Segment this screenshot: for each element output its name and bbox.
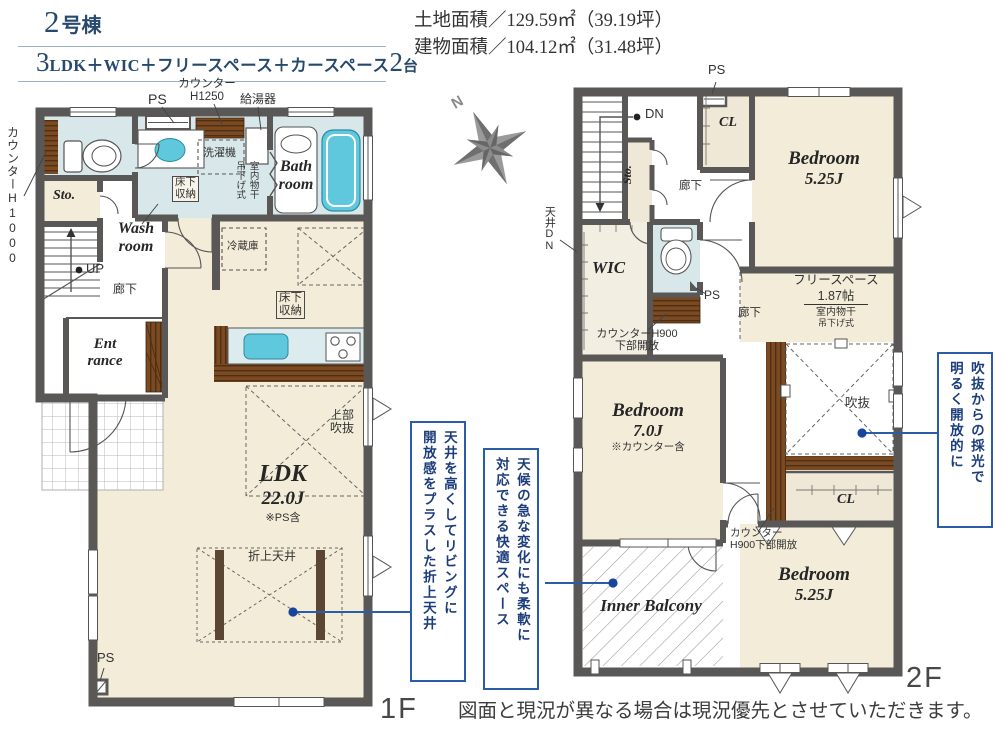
label-dn: DN bbox=[645, 107, 664, 122]
compass-icon bbox=[437, 95, 543, 201]
label-hallway-1f: 廊下 bbox=[113, 283, 137, 296]
label-cl-bottom: CL bbox=[837, 492, 855, 508]
label-inner-balcony: Inner Balcony bbox=[580, 596, 722, 615]
label-counter-h900-1: カウンターH900 下部開放 bbox=[588, 328, 686, 353]
label-bedroom1: Bedroom 5.25J bbox=[768, 148, 880, 188]
label-underfloor-storage-2: 床下 収納 bbox=[276, 291, 305, 319]
page-title: 2 号棟 bbox=[44, 4, 102, 40]
label-upper-void: 上部 吹抜 bbox=[322, 409, 362, 436]
kitchen-sink-icon bbox=[244, 334, 288, 359]
label-ldk: LDK 22.0J ※PS含 bbox=[240, 461, 326, 524]
label-void: 吹抜 bbox=[845, 396, 870, 410]
counter-h900-1-icon bbox=[650, 297, 700, 323]
plan-text: LDK＋WIC＋フリースペース＋カースペース bbox=[50, 52, 390, 76]
void-annotation-dot bbox=[857, 428, 866, 437]
callout-inner-balcony: 天候の急な変化にも柔軟に 対応できる快適スペース bbox=[483, 448, 539, 690]
label-ps-1f-bottom: PS bbox=[97, 651, 114, 666]
plan-cars-count: 2 bbox=[389, 47, 403, 78]
plan-summary: 3 LDK＋WIC＋フリースペース＋カースペース 2 台 bbox=[36, 47, 418, 78]
label-underfloor-storage-1: 床下 収納 bbox=[172, 176, 199, 202]
label-washer: 洗濯機 bbox=[203, 147, 236, 159]
label-water-heater: 給湯器 bbox=[240, 93, 276, 106]
label-ps-2f-top: PS bbox=[708, 63, 725, 78]
label-storage-1f: Sto. bbox=[53, 188, 75, 204]
up-dot bbox=[76, 267, 83, 274]
label-storage-2f: Sto. bbox=[621, 165, 634, 184]
toilet-icon-2f bbox=[661, 228, 692, 274]
balcony-annotation-dot bbox=[608, 578, 617, 587]
label-ceiling-dn: 天井DN bbox=[543, 206, 555, 268]
kitchen-icon bbox=[214, 326, 368, 382]
label-fridge: 冷蔵庫 bbox=[227, 241, 259, 253]
label-washroom: Wash room bbox=[106, 220, 166, 256]
land-area: 土地面積／129.59㎡（39.19坪） bbox=[414, 11, 673, 32]
floorplan-page: 2 号棟 3 LDK＋WIC＋フリースペース＋カースペース 2 台 土地面積／1… bbox=[0, 0, 1002, 737]
label-indoor-drying-1f: 室内物干 吊下げ式 bbox=[233, 161, 260, 217]
callout-coffered-ceiling: 天井を高くしてリビングに 開放感をプラスした折上天井 bbox=[410, 421, 466, 682]
building-area: 建物面積／104.12㎡（31.48坪） bbox=[414, 38, 673, 59]
label-counter-h1000: カウンターH1000 bbox=[5, 126, 18, 298]
plan-rooms-count: 3 bbox=[36, 47, 50, 78]
label-free-space: フリースペース 1.87帖 室内物干 吊下げ式 bbox=[776, 273, 896, 328]
label-bedroom3: Bedroom 5.25J bbox=[758, 564, 870, 604]
label-bathroom: Bath room bbox=[270, 158, 322, 194]
stove-icon bbox=[326, 333, 360, 361]
toilet-icon bbox=[64, 140, 121, 172]
label-ps-2f-mid: PS bbox=[704, 289, 720, 302]
floor1-label: 1F bbox=[380, 693, 418, 725]
label-hallway-2f-2: 廊下 bbox=[738, 307, 761, 320]
label-bedroom2: Bedroom 7.0J ※カウンター含 bbox=[596, 400, 700, 454]
label-cl-top: CL bbox=[719, 115, 737, 131]
floor2-label: 2F bbox=[906, 662, 944, 694]
building-number: 2 bbox=[44, 4, 60, 40]
label-coffered-ceiling: 折上天井 bbox=[248, 550, 296, 563]
label-hallway-2f-1: 廊下 bbox=[679, 180, 702, 193]
toilet-counter-icon bbox=[44, 120, 58, 174]
label-entrance: Ent rance bbox=[76, 336, 134, 370]
label-ps-1f-top: PS bbox=[148, 92, 167, 108]
building-suffix: 号棟 bbox=[62, 9, 102, 38]
label-counter-h1250: カウンター H1250 bbox=[176, 78, 238, 104]
label-counter-h900-2: カウンター H900下部開放 bbox=[730, 528, 797, 552]
callout-void: 吹抜からの採光で 明るく開放的に bbox=[937, 352, 993, 528]
water-heater-icon bbox=[246, 128, 268, 164]
coffered-annotation-dot bbox=[288, 607, 297, 616]
label-up: UP bbox=[86, 262, 104, 277]
sink-icon bbox=[138, 130, 204, 168]
dn-dot bbox=[634, 114, 641, 121]
label-wic: WIC bbox=[592, 258, 625, 277]
disclaimer-text: 図面と現況が異なる場合は現況優先とさせていただきます。 bbox=[458, 701, 983, 723]
